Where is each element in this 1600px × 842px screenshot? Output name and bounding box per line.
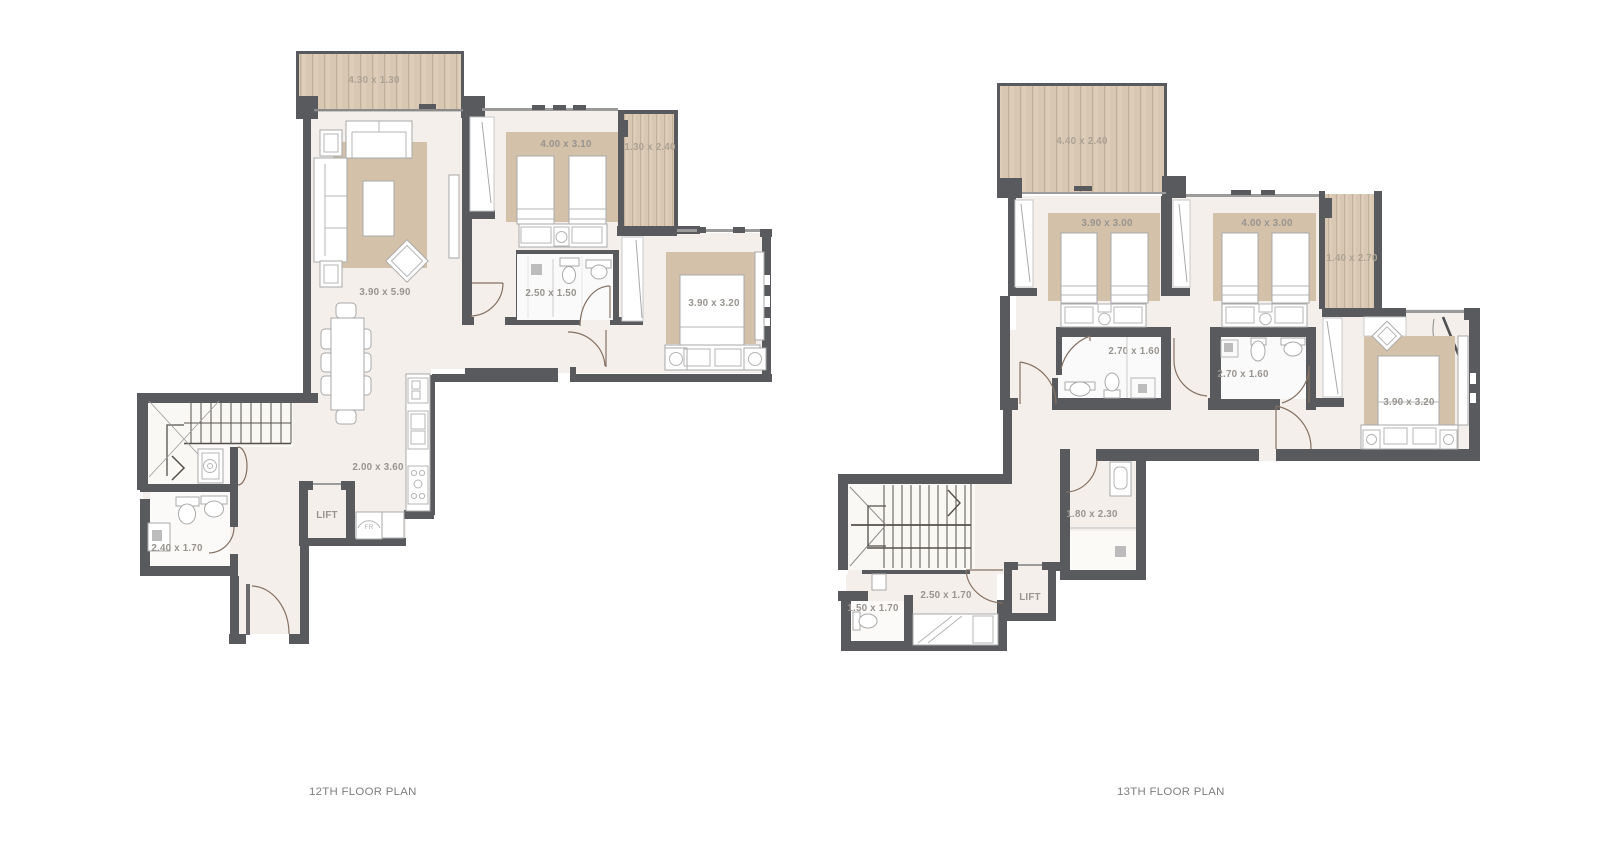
svg-text:1.40 x 2.70: 1.40 x 2.70: [1326, 253, 1378, 264]
svg-text:2.70 x 1.60: 2.70 x 1.60: [1108, 346, 1160, 357]
svg-text:1.80 x 2.30: 1.80 x 2.30: [1066, 509, 1118, 520]
svg-text:4.00 x 3.10: 4.00 x 3.10: [540, 139, 592, 150]
svg-text:2.50 x 1.70: 2.50 x 1.70: [920, 590, 972, 601]
svg-text:4.00 x 3.00: 4.00 x 3.00: [1241, 218, 1293, 229]
svg-text:FR: FR: [365, 524, 374, 531]
svg-text:3.90 x 3.20: 3.90 x 3.20: [1383, 397, 1435, 408]
svg-text:2.50 x 1.50: 2.50 x 1.50: [525, 288, 577, 299]
svg-text:12TH FLOOR PLAN: 12TH FLOOR PLAN: [309, 786, 417, 798]
svg-text:LIFT: LIFT: [1019, 592, 1040, 603]
svg-text:13TH FLOOR PLAN: 13TH FLOOR PLAN: [1117, 786, 1225, 798]
svg-text:3.90 x 3.20: 3.90 x 3.20: [688, 298, 740, 309]
svg-text:4.40 x 2.40: 4.40 x 2.40: [1056, 136, 1108, 147]
svg-text:3.90 x 5.90: 3.90 x 5.90: [359, 287, 411, 298]
svg-text:2.70 x 1.60: 2.70 x 1.60: [1217, 369, 1269, 380]
svg-text:2.00 x 3.60: 2.00 x 3.60: [352, 462, 404, 473]
svg-text:3.90 x 3.00: 3.90 x 3.00: [1081, 218, 1133, 229]
svg-text:1.30 x 2.40: 1.30 x 2.40: [624, 142, 676, 153]
svg-text:LIFT: LIFT: [316, 510, 337, 521]
svg-text:4.30 x 1.30: 4.30 x 1.30: [348, 75, 400, 86]
svg-text:2.40 x 1.70: 2.40 x 1.70: [151, 543, 203, 554]
